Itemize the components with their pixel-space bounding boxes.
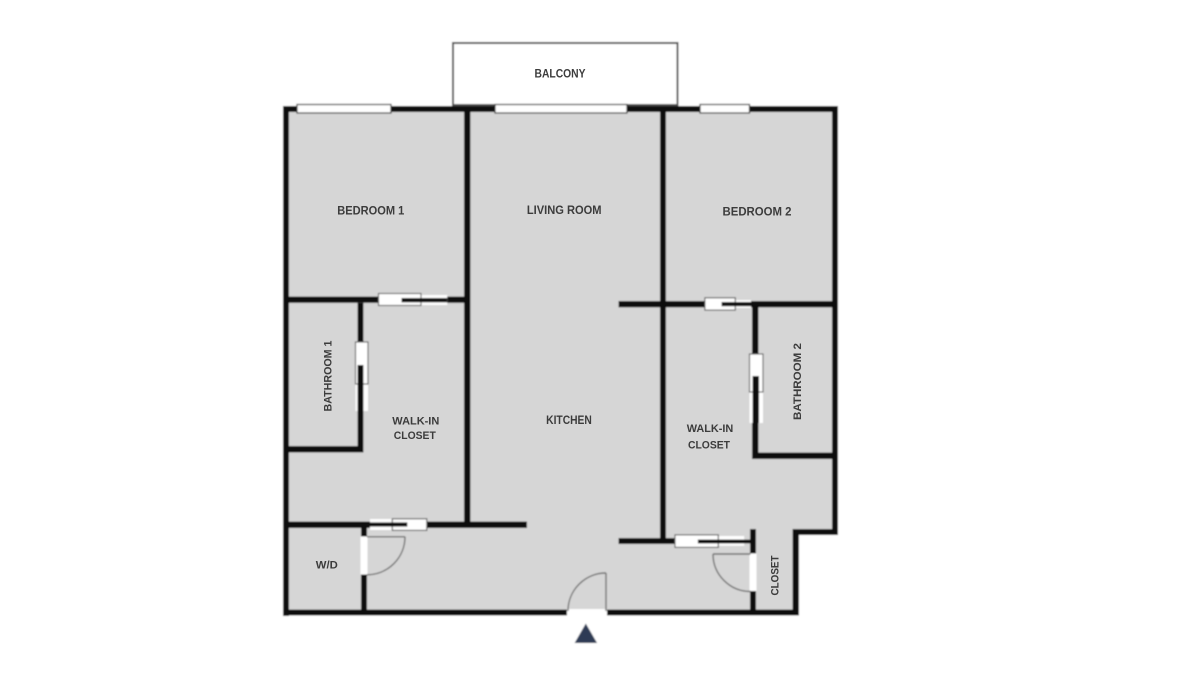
- svg-text:KITCHEN: KITCHEN: [546, 413, 592, 427]
- svg-text:BATHROOM 1: BATHROOM 1: [322, 341, 334, 412]
- svg-text:CLOSET: CLOSET: [769, 555, 781, 595]
- svg-text:BEDROOM 2: BEDROOM 2: [723, 204, 792, 218]
- svg-text:WALK-IN: WALK-IN: [392, 415, 439, 427]
- svg-text:BATHROOM 2: BATHROOM 2: [792, 343, 804, 420]
- svg-text:WALK-IN: WALK-IN: [687, 423, 734, 435]
- svg-text:LIVING ROOM: LIVING ROOM: [527, 203, 602, 217]
- svg-text:CLOSET: CLOSET: [688, 440, 730, 452]
- svg-text:BEDROOM 1: BEDROOM 1: [337, 203, 404, 217]
- svg-text:W/D: W/D: [316, 560, 338, 572]
- svg-text:BALCONY: BALCONY: [535, 67, 586, 81]
- svg-text:CLOSET: CLOSET: [394, 430, 436, 442]
